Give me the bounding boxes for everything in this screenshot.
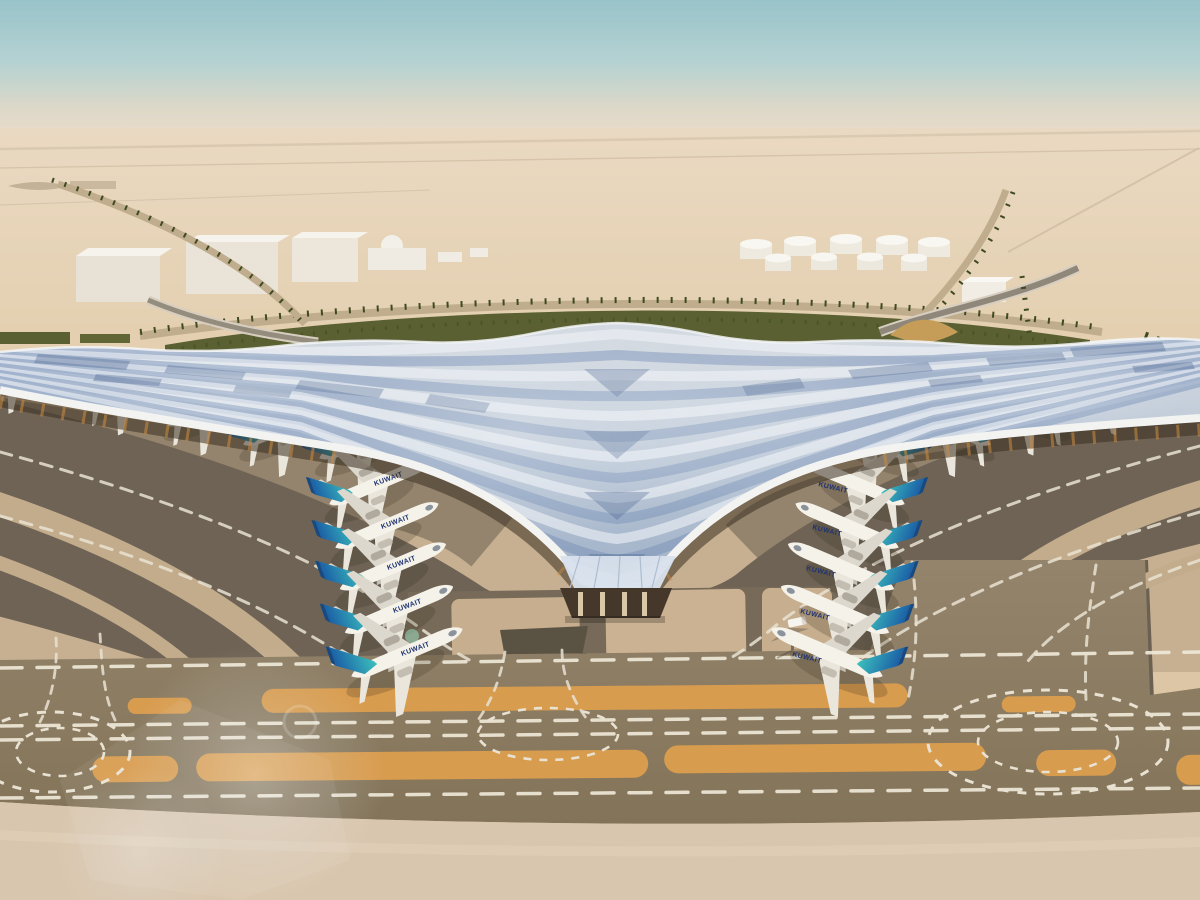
airport-rendering-stage: KUWAIT KUWAIT KUWAIT KUWAIT KUWAIT KUWAI…	[0, 0, 1200, 900]
sky	[0, 0, 1200, 138]
entrance-column	[578, 592, 583, 616]
hold-marking	[664, 743, 986, 774]
entrance-column	[622, 592, 627, 616]
flare-dot	[405, 629, 419, 643]
building-front	[292, 238, 358, 282]
small-building	[438, 252, 462, 262]
entrance-column	[642, 592, 647, 616]
green-patch	[80, 334, 130, 343]
apex-entrance	[560, 556, 676, 623]
small-building	[470, 248, 488, 257]
hold-marking	[1002, 696, 1076, 713]
mosque-building	[368, 248, 426, 270]
green-patch	[0, 332, 70, 344]
building-front	[76, 256, 160, 302]
entrance-shadow	[565, 616, 665, 623]
building-roof	[186, 235, 290, 242]
building-roof	[292, 232, 368, 238]
entrance-column	[600, 592, 605, 616]
entrance-recess	[560, 588, 672, 618]
utility-building-roof	[962, 277, 1014, 282]
airport-rendering: KUWAIT KUWAIT KUWAIT KUWAIT KUWAIT KUWAI…	[0, 0, 1200, 900]
building-roof	[76, 248, 172, 256]
